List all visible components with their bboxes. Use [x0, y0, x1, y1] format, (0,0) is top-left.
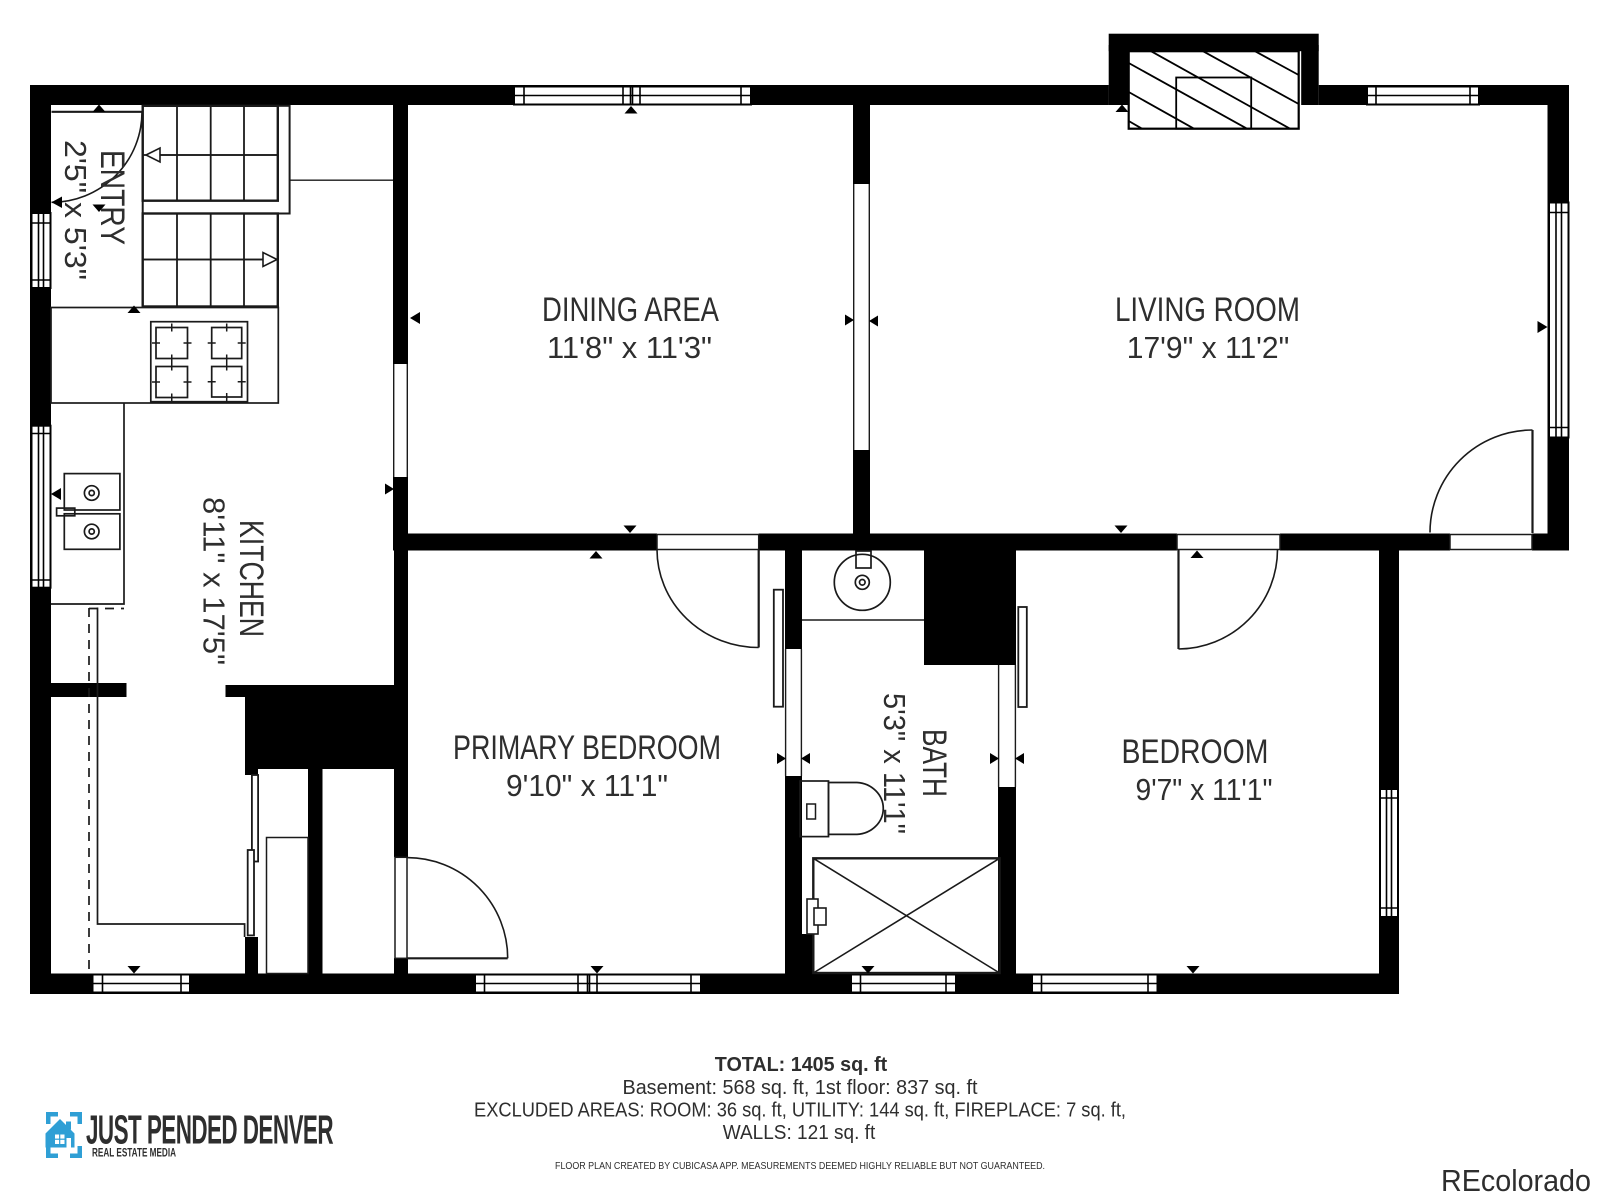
- svg-text:ENTRY: ENTRY: [93, 150, 131, 245]
- svg-text:LIVING ROOM: LIVING ROOM: [1115, 291, 1300, 329]
- svg-text:TOTAL: 1405 sq. ft: TOTAL: 1405 sq. ft: [715, 1054, 888, 1076]
- svg-text:FLOOR PLAN CREATED BY CUBICASA: FLOOR PLAN CREATED BY CUBICASA APP. MEAS…: [555, 1160, 1045, 1172]
- svg-text:Basement: 568 sq. ft, 1st floo: Basement: 568 sq. ft, 1st floor: 837 sq.…: [623, 1077, 978, 1099]
- svg-text:5'3" x 11'1": 5'3" x 11'1": [877, 693, 912, 834]
- svg-text:REcolorado: REcolorado: [1441, 1164, 1591, 1198]
- svg-text:WALLS: 121 sq. ft: WALLS: 121 sq. ft: [723, 1122, 876, 1144]
- svg-text:BATH: BATH: [915, 729, 953, 797]
- svg-text:EXCLUDED AREAS: ROOM: 36 sq. f: EXCLUDED AREAS: ROOM: 36 sq. ft, UTILITY…: [474, 1100, 1126, 1122]
- svg-text:REAL ESTATE MEDIA: REAL ESTATE MEDIA: [92, 1146, 176, 1160]
- svg-text:8'11" x 17'5": 8'11" x 17'5": [197, 497, 232, 665]
- svg-text:17'9" x 11'2": 17'9" x 11'2": [1127, 330, 1290, 365]
- svg-text:11'8" x 11'3": 11'8" x 11'3": [547, 330, 712, 365]
- svg-text:KITCHEN: KITCHEN: [232, 520, 270, 637]
- svg-text:9'10" x 11'1": 9'10" x 11'1": [506, 768, 668, 803]
- svg-text:DINING AREA: DINING AREA: [542, 291, 719, 329]
- svg-text:PRIMARY BEDROOM: PRIMARY BEDROOM: [453, 729, 721, 767]
- svg-text:2'5" x 5'3": 2'5" x 5'3": [58, 140, 93, 280]
- svg-text:9'7" x 11'1": 9'7" x 11'1": [1136, 772, 1273, 807]
- svg-text:BEDROOM: BEDROOM: [1122, 733, 1269, 771]
